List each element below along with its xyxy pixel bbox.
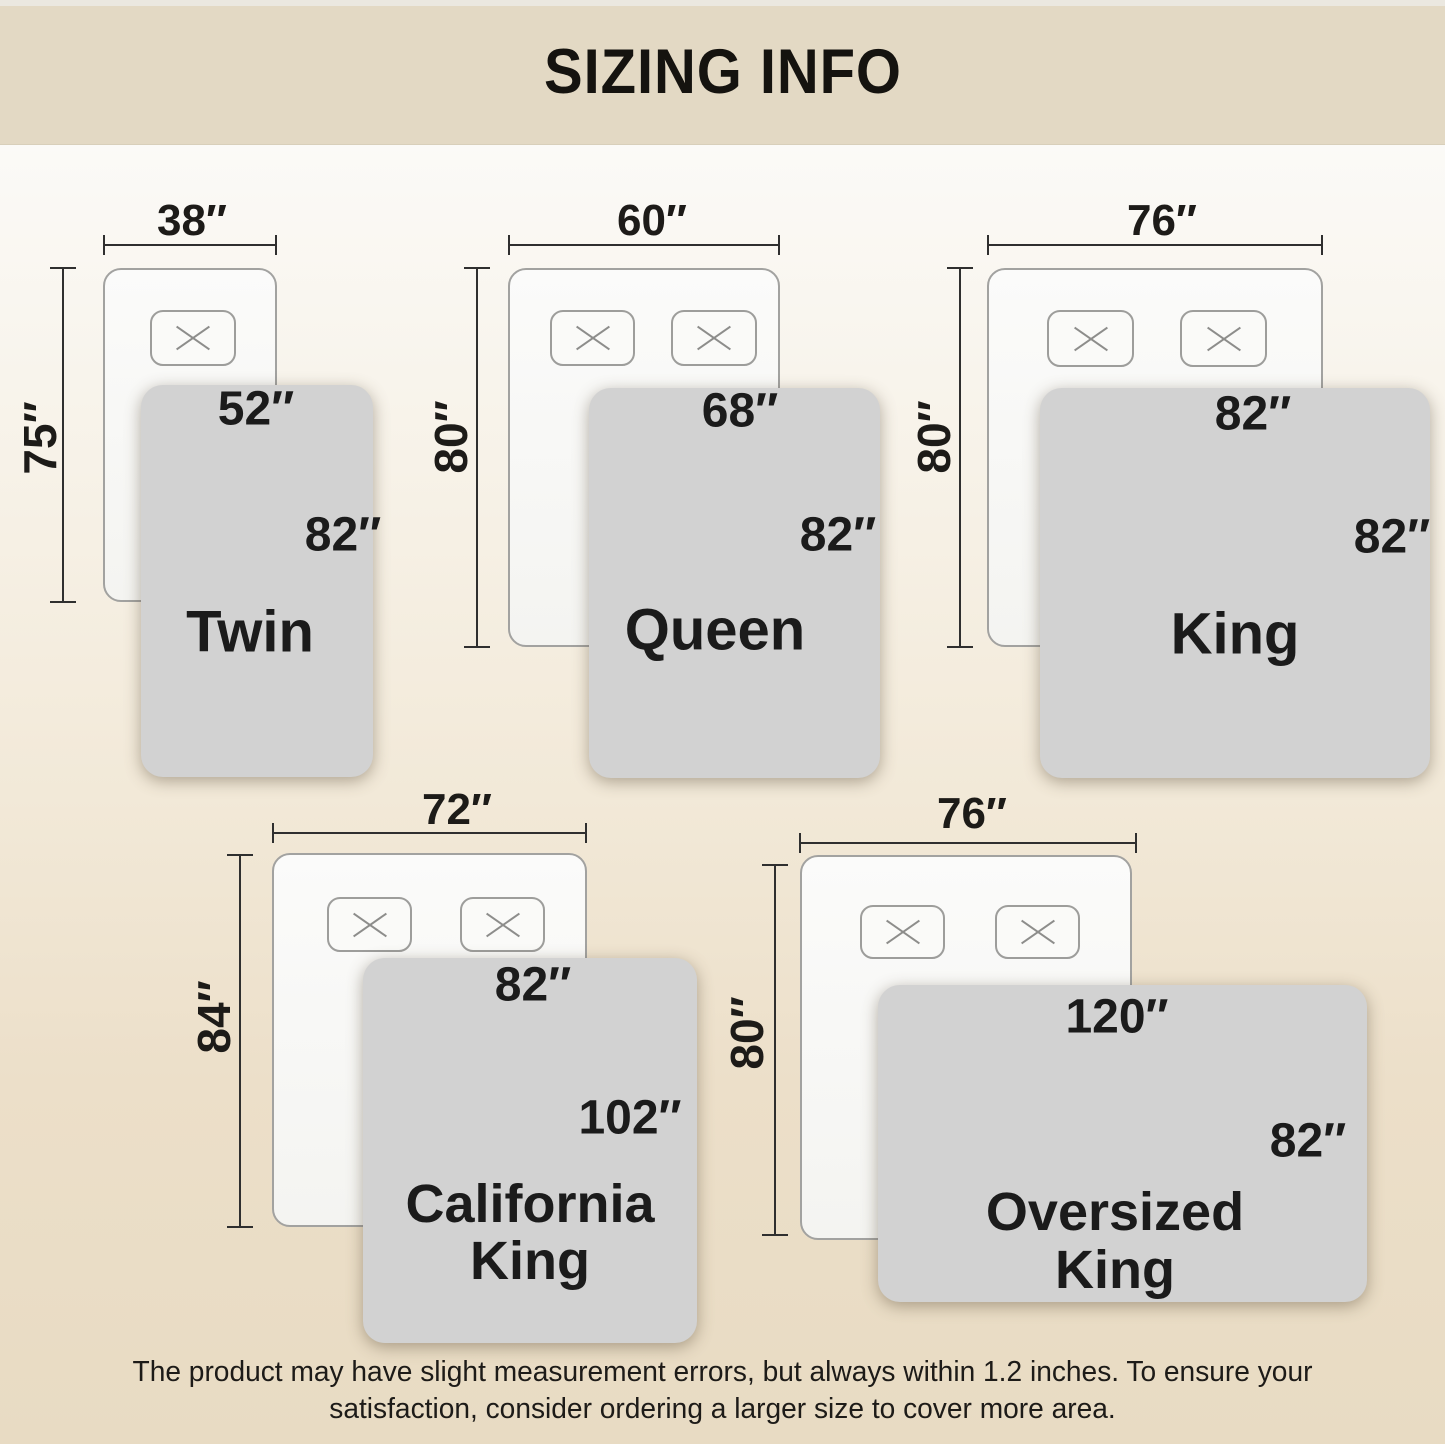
oversized-king-length-dimension-line	[774, 865, 776, 1235]
size-name-line: King	[986, 1241, 1244, 1299]
pillow	[1180, 310, 1267, 367]
king-size-name: King	[1171, 601, 1300, 668]
california-king-blanket-width-label: 82″	[495, 958, 571, 1013]
queen-blanket-width-label: 68″	[702, 384, 778, 439]
twin-size-name: Twin	[186, 599, 314, 666]
size-name-line: King	[405, 1233, 654, 1290]
header-bar: SIZING INFO	[0, 6, 1445, 145]
oversized-king-mattress-length-label: 80″	[720, 996, 774, 1069]
oversized-king-mattress-width-label: 76″	[937, 789, 1007, 839]
pillow-x-icon	[884, 917, 922, 947]
queen-mattress-length-label: 80″	[424, 400, 478, 473]
pillow	[860, 905, 945, 959]
footer-note-line: The product may have slight measurement …	[22, 1354, 1424, 1391]
queen-blanket: 68″ 82″ Queen	[589, 388, 880, 778]
oversized-king-blanket-length-label: 82″	[1270, 1114, 1346, 1169]
sizing-info-page: SIZING INFO 38″ 75″ 52″ 82″ Twin 60″ 80″	[0, 0, 1445, 1444]
page-title: SIZING INFO	[544, 36, 902, 108]
footer-note: The product may have slight measurement …	[22, 1354, 1424, 1428]
pillow-x-icon	[351, 910, 389, 940]
california-king-blanket-length-label: 102″	[578, 1091, 681, 1146]
oversized-king-blanket: 120″ 82″ Oversized King	[878, 985, 1367, 1302]
pillow-x-icon	[695, 323, 733, 353]
pillow-x-icon	[574, 323, 612, 353]
queen-mattress-width-label: 60″	[617, 196, 687, 246]
king-blanket-length-label: 82″	[1354, 510, 1430, 565]
pillow	[327, 897, 412, 952]
oversized-king-blanket-width-label: 120″	[1065, 990, 1168, 1045]
pillow	[550, 310, 635, 366]
oversized-king-width-dimension-line	[799, 842, 1137, 844]
twin-blanket: 52″ 82″ Twin	[141, 385, 373, 777]
footer-note-line: satisfaction, consider ordering a larger…	[22, 1391, 1424, 1428]
twin-blanket-width-label: 52″	[218, 382, 294, 437]
queen-size-name: Queen	[625, 597, 806, 664]
oversized-king-size-name: Oversized King	[986, 1183, 1244, 1300]
california-king-blanket: 82″ 102″ California King	[363, 958, 697, 1343]
king-blanket-width-label: 82″	[1215, 387, 1291, 442]
pillow-x-icon	[1205, 324, 1243, 354]
pillow	[460, 897, 545, 952]
twin-blanket-length-label: 82″	[305, 508, 381, 563]
california-king-mattress-length-label: 84″	[187, 980, 241, 1053]
pillow	[995, 905, 1080, 959]
pillow	[150, 310, 236, 366]
pillow-x-icon	[484, 910, 522, 940]
twin-mattress-width-label: 38″	[157, 196, 227, 246]
king-mattress-length-label: 80″	[907, 400, 961, 473]
twin-mattress-length-label: 75″	[13, 401, 67, 474]
queen-blanket-length-label: 82″	[800, 508, 876, 563]
pillow	[671, 310, 757, 366]
pillow-x-icon	[174, 323, 212, 353]
size-name-line: California	[405, 1176, 654, 1233]
pillow-x-icon	[1072, 324, 1110, 354]
pillow	[1047, 310, 1134, 367]
california-king-size-name: California King	[405, 1176, 654, 1289]
king-blanket: 82″ 82″ King	[1040, 388, 1430, 778]
pillow-x-icon	[1019, 917, 1057, 947]
king-mattress-width-label: 76″	[1127, 196, 1197, 246]
california-king-mattress-width-label: 72″	[422, 785, 492, 835]
size-name-line: Oversized	[986, 1183, 1244, 1241]
